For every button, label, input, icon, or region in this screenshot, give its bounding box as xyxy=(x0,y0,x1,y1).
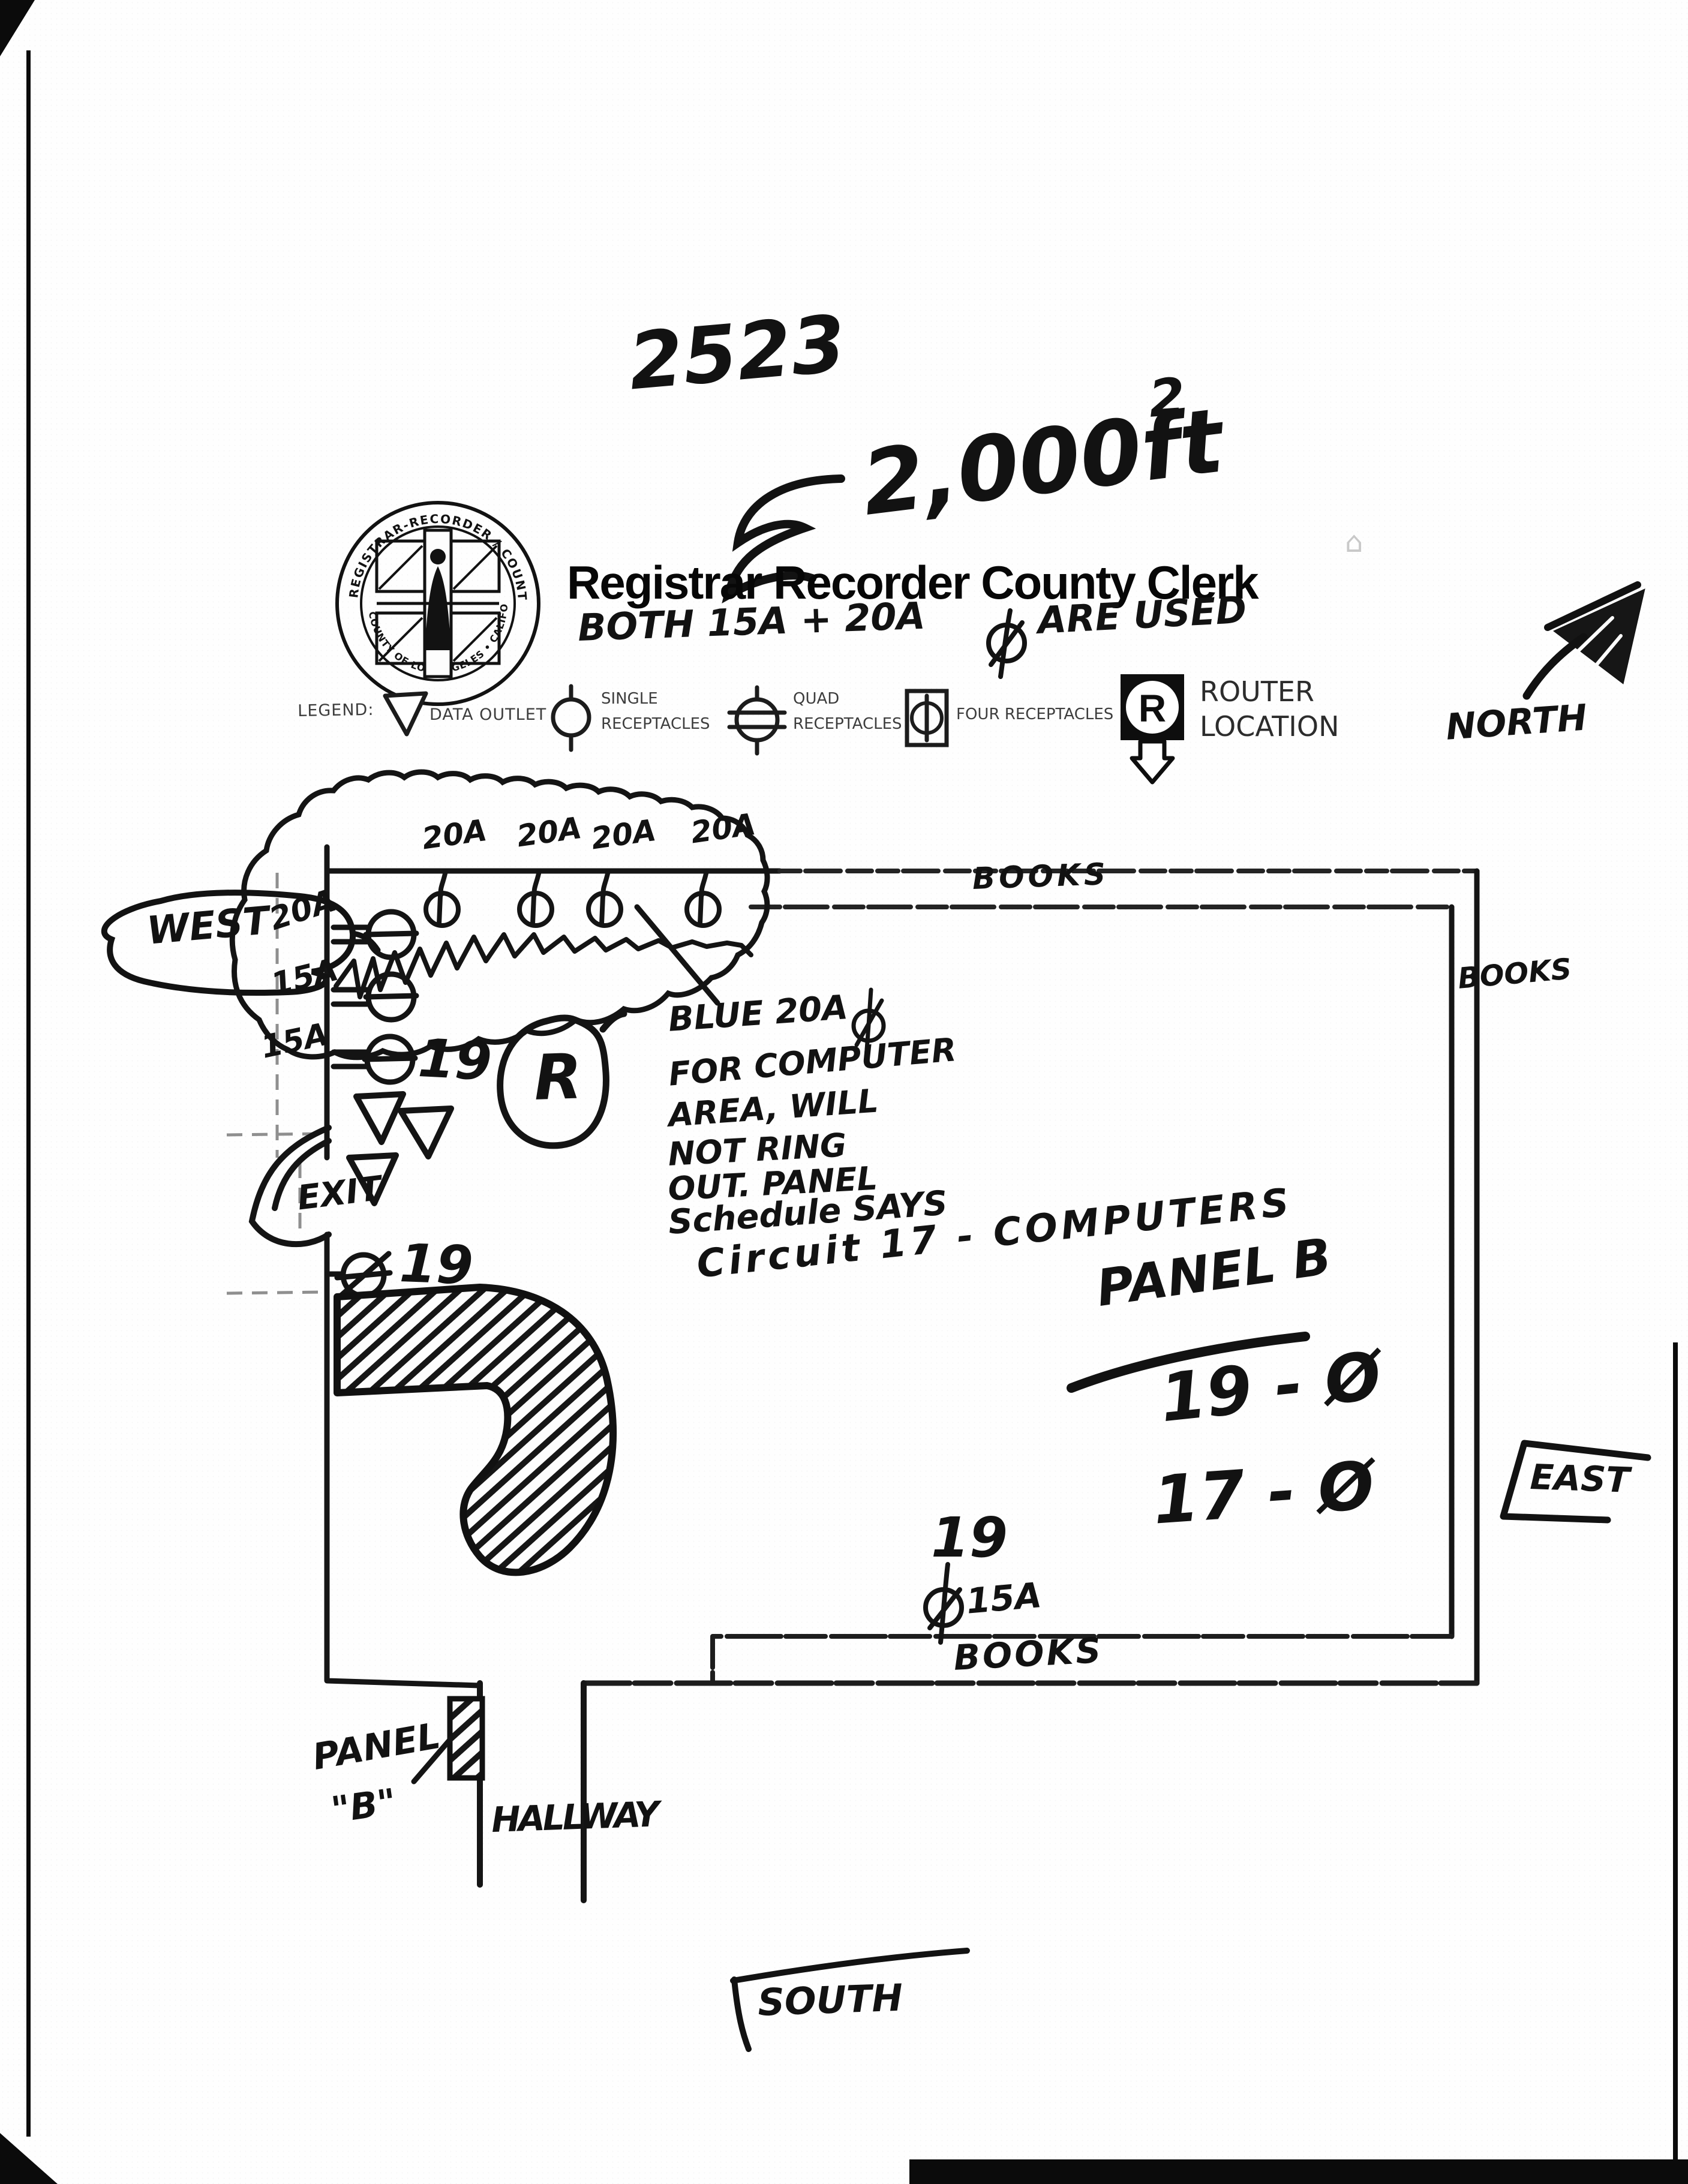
legend-single-line2: RECEPTACLES xyxy=(601,715,710,733)
scanned-floor-plan-page: REGISTRAR-RECORDER / COUNTY CLERK COUNTY… xyxy=(0,0,1688,2184)
compass-south-label: SOUTH xyxy=(757,1976,903,2024)
faint-house-icon: ⌂ xyxy=(1345,525,1363,559)
svg-text:R: R xyxy=(1139,687,1166,730)
panel-label-line2: "B" xyxy=(329,1781,399,1831)
data-outlet-icon xyxy=(385,693,426,734)
left-circuit-number: 19 xyxy=(417,1027,494,1092)
exit-circuit-number: 19 xyxy=(398,1232,474,1296)
legend-single-line1: SINGLE xyxy=(601,690,658,708)
quad-receptacle-icon xyxy=(729,687,785,753)
floor-receptacle-icon xyxy=(926,1564,962,1642)
hatched-counter xyxy=(337,1287,613,1572)
router-location-icon: R xyxy=(1121,674,1184,782)
note-leader-line xyxy=(637,907,717,1003)
legend-router-line1: ROUTER xyxy=(1200,675,1314,708)
area-exponent: 2 xyxy=(1147,367,1187,429)
panel-b-box xyxy=(450,1699,482,1778)
compass-east-label: EAST xyxy=(1530,1456,1630,1501)
county-seal-icon: REGISTRAR-RECORDER / COUNTY CLERK COUNTY… xyxy=(329,488,539,704)
floor-circuit-number: 19 xyxy=(931,1506,1008,1570)
top-wall-receptacles xyxy=(426,871,719,926)
books-top-label: BOOKS xyxy=(972,857,1110,896)
floor-amp-label: 15A xyxy=(965,1575,1043,1622)
legend-quad-line2: RECEPTACLES xyxy=(793,715,902,733)
panel-b-row: 17 - Ø xyxy=(1151,1447,1377,1539)
hallway-label: HALLWAY xyxy=(491,1794,658,1840)
legend-data-outlet-label: DATA OUTLET xyxy=(429,705,546,724)
books-bottom-label: BOOKS xyxy=(953,1630,1104,1678)
legend-router-line2: LOCATION xyxy=(1200,710,1339,743)
legend-quad-line1: QUAD xyxy=(793,690,839,708)
four-receptacle-icon xyxy=(907,691,947,745)
legend-four-label: FOUR RECEPTACLES xyxy=(956,705,1113,723)
north-arrow-icon xyxy=(1527,585,1645,696)
sheet-number: 2523 xyxy=(625,298,849,407)
receptacle-icon xyxy=(989,611,1025,677)
single-receptacle-icon xyxy=(553,686,589,750)
router-letter: R xyxy=(533,1040,583,1114)
legend-label: LEGEND: xyxy=(298,701,374,720)
